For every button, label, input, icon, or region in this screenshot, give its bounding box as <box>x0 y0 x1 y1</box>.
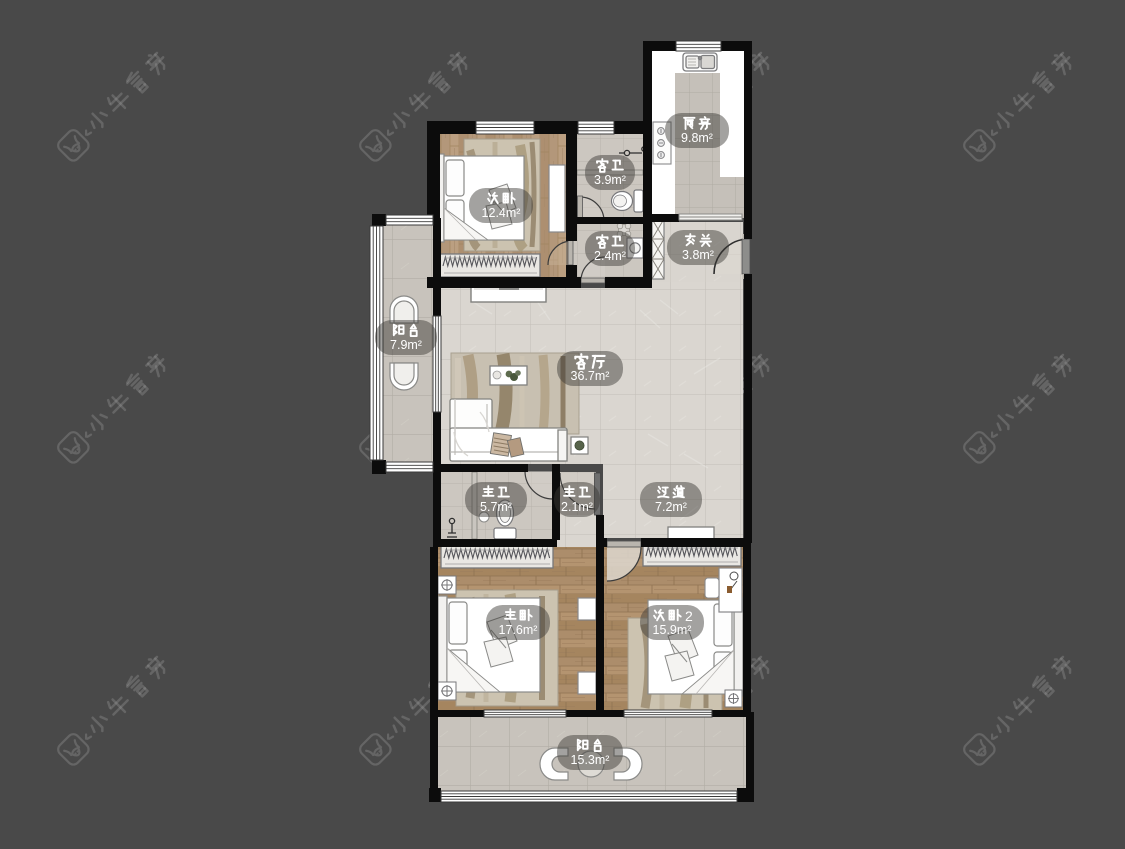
svg-text:15.3m²: 15.3m² <box>571 753 610 767</box>
svg-text:15.9m²: 15.9m² <box>653 623 692 637</box>
svg-text:2: 2 <box>685 608 693 624</box>
svg-text:17.6m²: 17.6m² <box>499 623 538 637</box>
svg-text:2.1m²: 2.1m² <box>561 500 593 514</box>
svg-text:12.4m²: 12.4m² <box>482 206 521 220</box>
svg-text:9.8m²: 9.8m² <box>681 131 713 145</box>
svg-text:7.9m²: 7.9m² <box>390 338 422 352</box>
svg-text:3.8m²: 3.8m² <box>682 248 714 262</box>
svg-text:36.7m²: 36.7m² <box>571 369 610 383</box>
svg-text:3.9m²: 3.9m² <box>594 173 626 187</box>
svg-text:7.2m²: 7.2m² <box>655 500 687 514</box>
svg-text:2.4m²: 2.4m² <box>594 249 626 263</box>
svg-text:5.7m²: 5.7m² <box>480 500 512 514</box>
